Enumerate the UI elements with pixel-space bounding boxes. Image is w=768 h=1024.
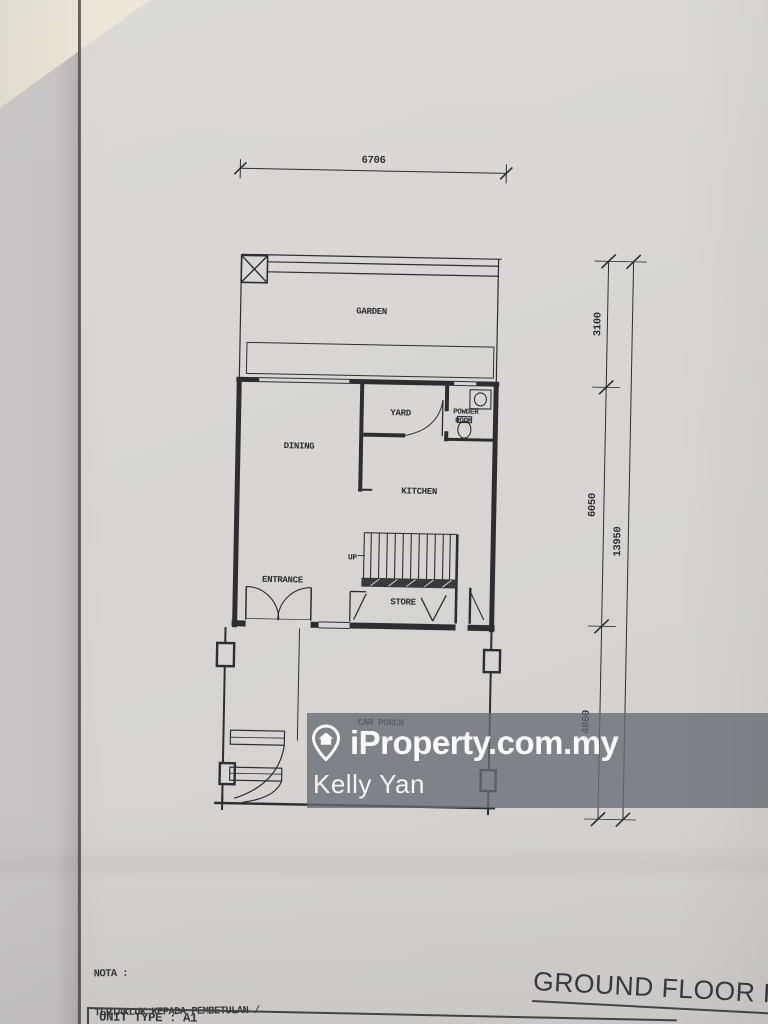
- watermark-user: Kelly Yan: [313, 769, 768, 800]
- room-label-dining: DINING: [284, 441, 315, 452]
- dim-house-depth: 6050: [587, 493, 599, 517]
- yard-door-arc: [405, 399, 443, 436]
- room-label-garden: GARDEN: [356, 307, 387, 318]
- interior-walls: [358, 382, 496, 495]
- floor-plan-drawing: 6706 GARDEN: [0, 0, 768, 1024]
- page-spine-crease: [78, 0, 81, 1024]
- stair-up-label: UP: [348, 553, 358, 562]
- room-label-yard: YARD: [390, 408, 411, 418]
- room-label-kitchen: KITCHEN: [401, 486, 437, 497]
- store-room: [350, 591, 447, 623]
- porch-gates: [229, 730, 284, 803]
- dim-width-label: 6706: [361, 155, 385, 167]
- unit-type-label: UNIT TYPE : A1: [99, 1010, 197, 1024]
- entrance-door: [246, 586, 312, 620]
- dim-total-depth: 13950: [612, 526, 625, 556]
- note-line: NOTA :: [94, 966, 271, 982]
- room-label-powder-1: POWDER: [453, 408, 479, 416]
- underlying-page-edge: [0, 0, 80, 1024]
- room-label-entrance: ENTRANCE: [262, 575, 304, 586]
- top-dimension: 6706: [234, 152, 512, 183]
- room-label-powder-2: ROOM: [455, 417, 473, 425]
- dim-garden-depth: 3100: [592, 312, 604, 336]
- planter-strip: [246, 342, 494, 378]
- photographed-floorplan-page: 6706 GARDEN: [0, 0, 768, 1024]
- watermark-overlay: iProperty.com.my Kelly Yan: [307, 713, 768, 808]
- title-block-border-left: [87, 1007, 89, 1024]
- garden-area: GARDEN: [239, 254, 501, 382]
- room-label-store: STORE: [390, 597, 417, 608]
- iproperty-pin-icon: [311, 724, 341, 762]
- watermark-brand: iProperty.com.my: [350, 724, 618, 762]
